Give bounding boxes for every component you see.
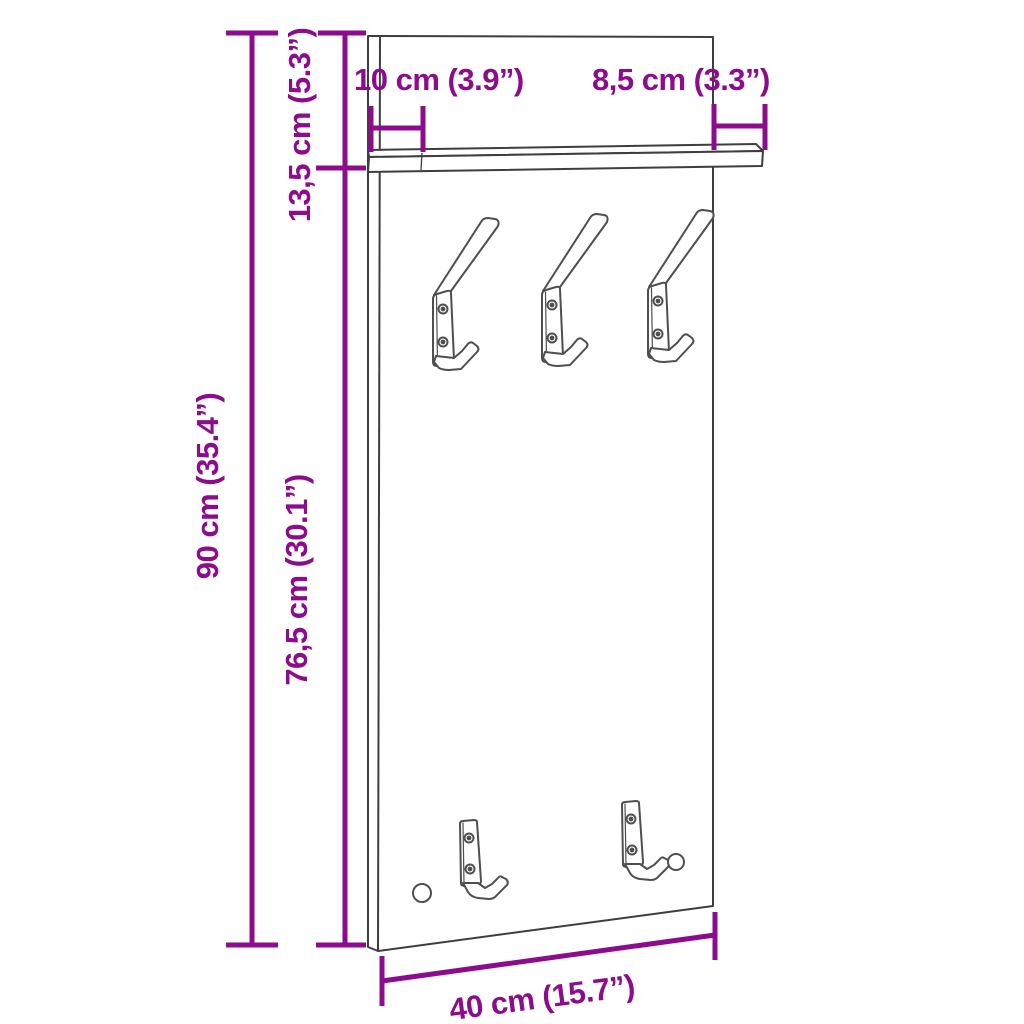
diagram-artwork	[0, 0, 1024, 1024]
dim-total-height	[226, 33, 278, 945]
mounting-hole	[413, 884, 431, 902]
dim-shelf-overhang	[714, 104, 765, 150]
shelf	[368, 144, 763, 172]
dim-label-shelf-depth: 10 cm (3.9”)	[354, 62, 524, 98]
dim-label-lower-section-height: 76,5 cm (30.1”)	[279, 474, 315, 685]
dim-section-heights	[316, 33, 366, 945]
wall-panel	[368, 36, 713, 951]
dim-label-total-height: 90 cm (35.4”)	[190, 393, 226, 580]
dimension-diagram: 10 cm (3.9”) 8,5 cm (3.3”) 13,5 cm (5.3”…	[0, 0, 1024, 1024]
dim-label-upper-section-height: 13,5 cm (5.3”)	[282, 28, 318, 223]
dim-label-shelf-overhang: 8,5 cm (3.3”)	[592, 62, 770, 98]
